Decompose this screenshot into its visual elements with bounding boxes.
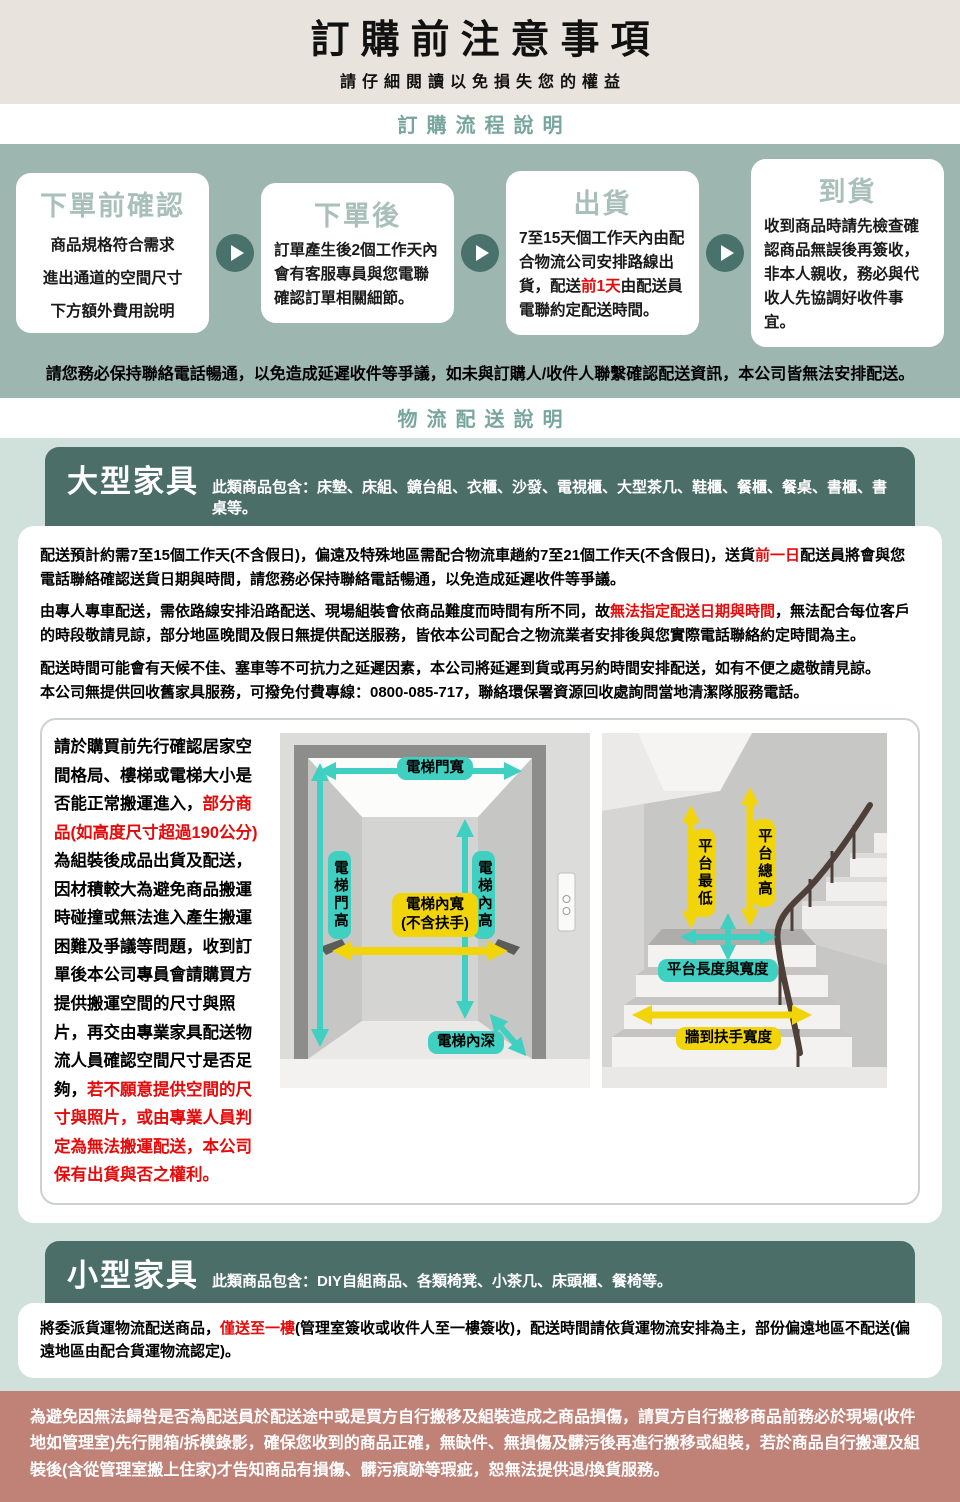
large-furniture-panel: 配送預計約需7至15個工作天(不含假日)，偏遠及特殊地區需配合物流車趟約7至21…	[18, 526, 942, 1223]
small-furniture-desc: 此類商品包含：DIY自組商品、各類椅凳、小茶几、床頭櫃、餐椅等。	[212, 1270, 672, 1291]
platform-min-label: 平台最低	[692, 829, 715, 917]
triangle-icon	[721, 245, 734, 261]
delay-note: 配送時間可能會有天候不佳、塞車等不可抗力之延遲因素，本公司將延遲到貨或再另約時間…	[40, 657, 920, 681]
step-title: 下單前確認	[29, 184, 196, 223]
step-card-after-order: 下單後 訂單產生後2個工作天內會有客服專員與您電聯確認訂單相關細節。	[261, 183, 454, 323]
elevator-door-width-label: 電梯門寬	[397, 757, 473, 780]
page-title: 訂購前注意事項	[0, 9, 960, 65]
flow-contact-note: 請您務必保持聯絡電話暢通，以免造成延遲收件等爭議，如未與訂購人/收件人聯繫確認配…	[16, 360, 944, 384]
recycle-hotline-note: 本公司無提供回收舊家具服務，可撥免付費專線：0800-085-717，聯絡環保署…	[40, 681, 920, 705]
small-furniture-title: 小型家具	[67, 1250, 199, 1295]
step-title: 出貨	[519, 182, 686, 221]
flow-arrow-icon	[461, 234, 499, 272]
triangle-icon	[231, 245, 244, 261]
elevator-diagram: 電梯門寬 電梯門高 電梯內高 電梯內寬(不含扶手) 電梯內深	[280, 733, 590, 1088]
flow-arrow-icon	[216, 234, 254, 272]
elevator-inner-width-label: 電梯內寬(不含扶手)	[392, 893, 478, 937]
step-body: 商品規格符合需求 進出通道的空間尺寸 下方額外費用說明	[29, 233, 196, 321]
stairs-diagram: 平台最低 平台總高 平台長度與寬度 牆到扶手寬度	[602, 733, 887, 1088]
step-body: 7至15天個工作天內由配合物流公司安排路線出貨，配送前1天由配送員電聯約定配送時…	[519, 227, 686, 323]
elevator-door-height-label: 電梯門高	[328, 851, 351, 939]
logistics-section: 大型家具 此類商品包含：床墊、床組、鏡台組、衣櫃、沙發、電視櫃、大型茶几、鞋櫃、…	[0, 438, 960, 1391]
step-title: 到貨	[764, 170, 931, 209]
page-subtitle: 請仔細閱讀以免損失您的權益	[0, 68, 960, 92]
step-line: 商品規格符合需求	[29, 233, 196, 255]
small-furniture-panel: 將委派貨運物流配送商品，僅送至一樓(管理室簽收或收件人至一樓簽收)，配送時間請依…	[18, 1303, 942, 1378]
platform-length-width-label: 平台長度與寬度	[658, 959, 778, 982]
flow-arrow-icon	[706, 234, 744, 272]
delivery-lead-time-note: 配送預計約需7至15個工作天(不含假日)，偏遠及特殊地區需配合物流車趟約7至21…	[40, 544, 920, 591]
step-line: 進出通道的空間尺寸	[29, 266, 196, 288]
small-furniture-note: 將委派貨運物流配送商品，僅送至一樓(管理室簽收或收件人至一樓簽收)，配送時間請依…	[40, 1317, 920, 1364]
page-header: 訂購前注意事項 請仔細閱讀以免損失您的權益	[0, 0, 960, 104]
wall-to-rail-label: 牆到扶手寬度	[676, 1027, 781, 1050]
damage-disclaimer: 為避免因無法歸咎是否為配送員於配送途中或是買方自行搬移及組裝造成之商品損傷，請買…	[0, 1391, 960, 1502]
flow-section-heading: 訂購流程說明	[0, 109, 960, 138]
step-card-shipping: 出貨 7至15天個工作天內由配合物流公司安排路線出貨，配送前1天由配送員電聯約定…	[506, 171, 699, 335]
flow-section-strip: 訂購流程說明	[0, 104, 960, 144]
step-body: 訂單產生後2個工作天內會有客服專員與您電聯確認訂單相關細節。	[274, 239, 441, 311]
dedicated-delivery-note: 由專人專車配送，需依路線安排沿路配送、現場組裝會依商品難度而時間有所不同，故無法…	[40, 600, 920, 647]
step-line: 下方額外費用說明	[29, 299, 196, 321]
order-flow-row: 下單前確認 商品規格符合需求 進出通道的空間尺寸 下方額外費用說明 下單後 訂單…	[16, 159, 944, 347]
triangle-icon	[476, 245, 489, 261]
step-body: 收到商品時請先檢查確認商品無誤後再簽收，非本人親收，務必與代收人先協調好收件事宜…	[764, 215, 931, 335]
page-root: 訂購前注意事項 請仔細閱讀以免損失您的權益 訂購流程說明 下單前確認 商品規格符…	[0, 0, 960, 1502]
step-card-arrival: 到貨 收到商品時請先檢查確認商品無誤後再簽收，非本人親收，務必與代收人先協調好收…	[751, 159, 944, 347]
platform-total-label: 平台總高	[752, 819, 775, 907]
order-flow-section: 下單前確認 商品規格符合需求 進出通道的空間尺寸 下方額外費用說明 下單後 訂單…	[0, 144, 960, 398]
large-furniture-desc: 此類商品包含：床墊、床組、鏡台組、衣櫃、沙發、電視櫃、大型茶几、鞋櫃、餐櫃、餐桌…	[212, 476, 893, 518]
logistics-section-heading: 物流配送說明	[0, 403, 960, 432]
logistics-section-strip: 物流配送說明	[0, 398, 960, 438]
step-card-preorder: 下單前確認 商品規格符合需求 進出通道的空間尺寸 下方額外費用說明	[16, 173, 209, 333]
space-check-text: 請於購買前先行確認居家空間格局、樓梯或電梯大小是否能正常搬運進入，部分商品(如高…	[54, 733, 268, 1190]
step-title: 下單後	[274, 194, 441, 233]
elevator-inner-depth-label: 電梯內深	[428, 1031, 504, 1054]
space-check-panel: 請於購買前先行確認居家空間格局、樓梯或電梯大小是否能正常搬運進入，部分商品(如高…	[40, 718, 920, 1205]
large-furniture-title: 大型家具	[67, 456, 199, 501]
damage-disclaimer-text: 為避免因無法歸咎是否為配送員於配送途中或是買方自行搬移及組裝造成之商品損傷，請買…	[30, 1409, 920, 1478]
